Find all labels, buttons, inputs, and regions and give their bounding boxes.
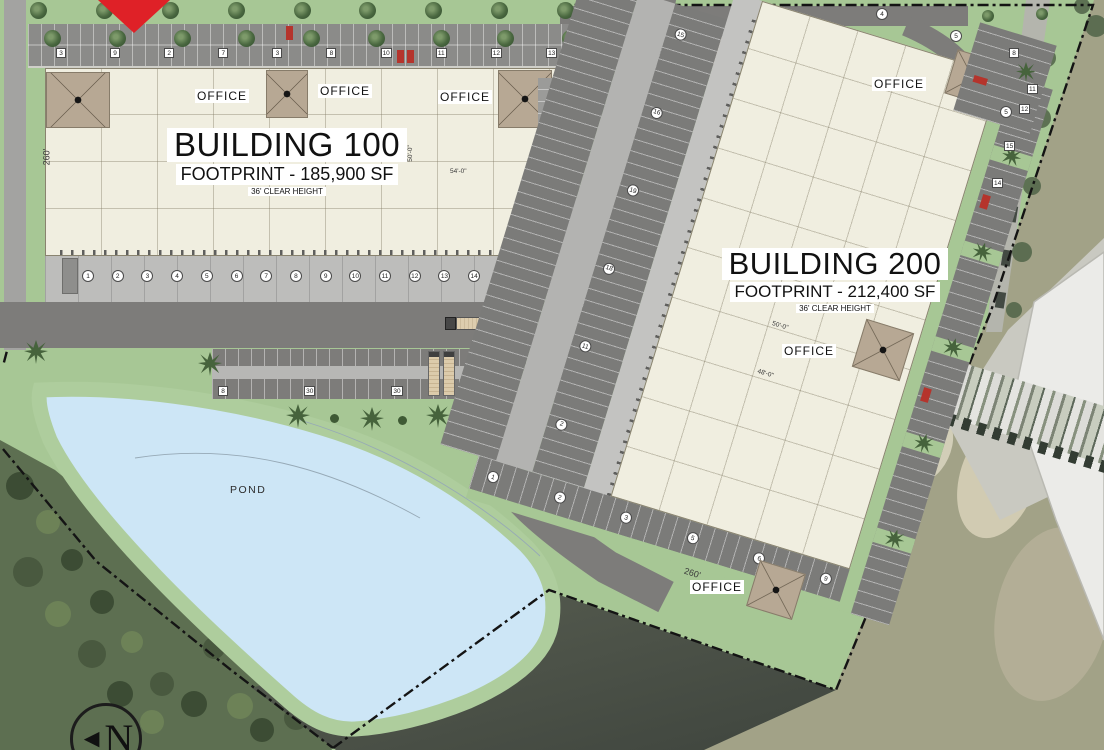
parking-count-badge: 2 (164, 48, 174, 58)
parking-count-badge: 5 (685, 531, 700, 546)
building-100-footprint: FOOTPRINT - 185,900 SF (176, 164, 399, 185)
building-100-side-dimension: 260' (41, 149, 51, 166)
parking-count-badge: 8 (326, 48, 336, 58)
building-100-bay-dim: 50'-0" (407, 145, 414, 162)
dock-bay-number: 12 (409, 270, 421, 282)
tree-icon (174, 30, 191, 47)
dock-ramp (62, 258, 78, 294)
car (973, 75, 988, 86)
building-200-title-block: BUILDING 200 FOOTPRINT - 212,400 SF 36' … (700, 248, 970, 313)
truck-cab (445, 317, 456, 330)
parking-count-badge: 9 (110, 48, 120, 58)
bush-icon (398, 416, 407, 425)
parking-count-badge: 13 (546, 48, 557, 58)
trailer-count-badge: 8 (218, 386, 228, 396)
tree-icon (238, 30, 255, 47)
tree-icon (294, 2, 311, 19)
parking-count-badge: 9 (818, 571, 833, 586)
trailer-cab (429, 352, 439, 357)
parking-count-badge: 8 (1009, 48, 1019, 58)
building-200-name: BUILDING 200 (722, 248, 949, 280)
office-label: OFFICE (690, 580, 744, 594)
dock-bay-number: 6 (231, 270, 243, 282)
tree-icon (433, 30, 450, 47)
parking-count-badge: 4 (876, 8, 888, 20)
building-200-footprint: FOOTPRINT - 212,400 SF (730, 282, 941, 302)
tree-icon (1036, 8, 1048, 20)
tree-icon (368, 30, 385, 47)
dock-bay-number: 9 (320, 270, 332, 282)
dock-bay-number: 5 (201, 270, 213, 282)
palm-tree-icon (24, 340, 48, 364)
pond-label: POND (230, 484, 266, 496)
parking-count-badge: 7 (218, 48, 228, 58)
site-plan: 3 9 2 7 3 8 10 11 12 13 15 16 OFFICE OFF… (0, 0, 1104, 750)
parking-count-badge: 11 (436, 48, 447, 58)
parking-count-badge: 5 (950, 30, 962, 42)
parking-count-badge: 11 (1027, 84, 1038, 94)
office-label: OFFICE (872, 77, 926, 91)
dock-bay-number: 11 (379, 270, 391, 282)
dock-bay-number: 8 (290, 270, 302, 282)
parking-count-badge: 3 (56, 48, 66, 58)
building-100-name: BUILDING 100 (167, 128, 407, 162)
parking-count-badge: 14 (992, 178, 1003, 188)
parking-count-badge: 12 (491, 48, 502, 58)
tree-icon (425, 2, 442, 19)
building-200-clear-height: 36' CLEAR HEIGHT (796, 304, 874, 313)
dock-bay-number: 2 (112, 270, 124, 282)
dock-bay-number: 1 (82, 270, 94, 282)
dock-bay-number: 14 (468, 270, 480, 282)
office-label: OFFICE (318, 84, 372, 98)
west-access-road (4, 0, 26, 350)
north-label: N (104, 719, 133, 750)
parking-count-badge: 10 (381, 48, 392, 58)
north-arrow-pointer-icon: ◄ (79, 726, 105, 750)
palm-tree-icon (198, 352, 222, 376)
trailer-count-badges: 8 30 30 33 (218, 386, 490, 396)
parking-count-badge: 2 (552, 490, 567, 505)
palm-tree-icon (1016, 62, 1036, 82)
tree-icon (359, 2, 376, 19)
palm-tree-icon (360, 407, 384, 431)
tree-icon (109, 30, 126, 47)
parking-count-badge: 3 (272, 48, 282, 58)
office-label: OFFICE (438, 90, 492, 104)
dock-bay-number: 13 (438, 270, 450, 282)
dock-bay-number: 4 (171, 270, 183, 282)
parking-count-badge: 15 (1004, 141, 1015, 151)
trailer-count-badge: 30 (391, 386, 402, 396)
dock-bay-number: 10 (349, 270, 361, 282)
tree-icon (491, 2, 508, 19)
dock-bay-number: 7 (260, 270, 272, 282)
parking-count-badge: 12 (1019, 104, 1030, 114)
parking-count-badge: 5 (1000, 106, 1012, 118)
dock-bay-numbers: 1 2 3 4 5 6 7 8 9 10 11 12 13 14 15 (82, 270, 510, 282)
tree-icon (44, 30, 61, 47)
tree-icon (303, 30, 320, 47)
tree-icon (982, 10, 994, 22)
building-100-office-1 (46, 72, 110, 128)
tree-icon (497, 30, 514, 47)
trailer-count-badge: 30 (304, 386, 315, 396)
office-label: OFFICE (782, 344, 836, 358)
building-100-clear-height: 36' CLEAR HEIGHT (248, 187, 326, 196)
palm-tree-icon (286, 404, 310, 428)
tree-icon (228, 2, 245, 19)
parking-count-badge: 3 (619, 510, 634, 525)
dock-bay-number: 3 (141, 270, 153, 282)
trailer-cab (444, 352, 454, 357)
building-100-bay-dim: 54'-0" (450, 168, 467, 175)
office-label: OFFICE (195, 89, 249, 103)
tree-icon (30, 2, 47, 19)
bush-icon (330, 414, 339, 423)
building-100-dock-doors (60, 250, 538, 255)
building-100-office-2 (266, 70, 308, 118)
parking-count-badge: 1 (486, 470, 501, 485)
building-100-title-block: BUILDING 100 FOOTPRINT - 185,900 SF 36' … (120, 128, 454, 196)
